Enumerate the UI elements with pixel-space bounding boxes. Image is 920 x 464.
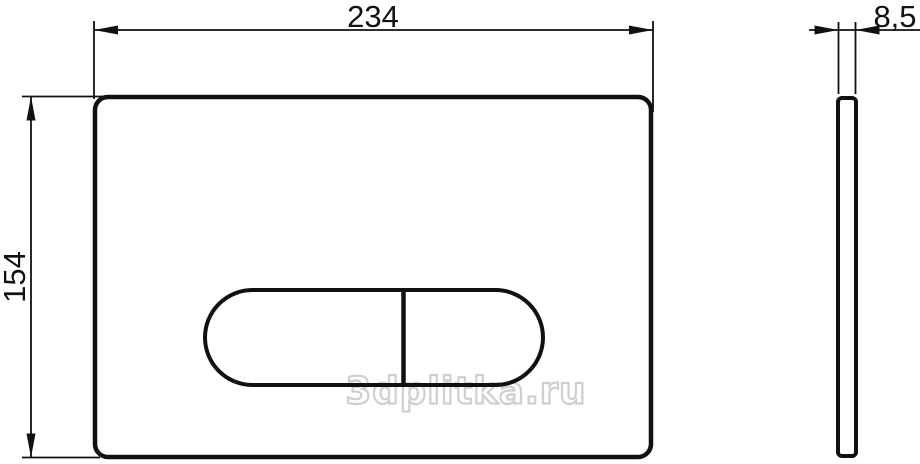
flush-button-oval bbox=[205, 290, 543, 385]
technical-drawing-canvas: 3dplitka.ru 234 154 bbox=[0, 0, 920, 464]
width-dimension-label: 234 bbox=[347, 0, 399, 34]
flush-plate-dimension-drawing: 234 154 8,5 bbox=[0, 0, 920, 464]
front-view bbox=[95, 97, 651, 457]
height-dimension: 154 bbox=[0, 97, 107, 458]
height-dimension-label: 154 bbox=[0, 251, 32, 303]
front-plate-outline bbox=[95, 97, 651, 457]
side-profile-outline bbox=[838, 98, 856, 456]
thickness-dimension: 8,5 bbox=[809, 0, 920, 94]
side-view bbox=[838, 98, 856, 456]
thickness-dimension-label: 8,5 bbox=[873, 0, 916, 34]
